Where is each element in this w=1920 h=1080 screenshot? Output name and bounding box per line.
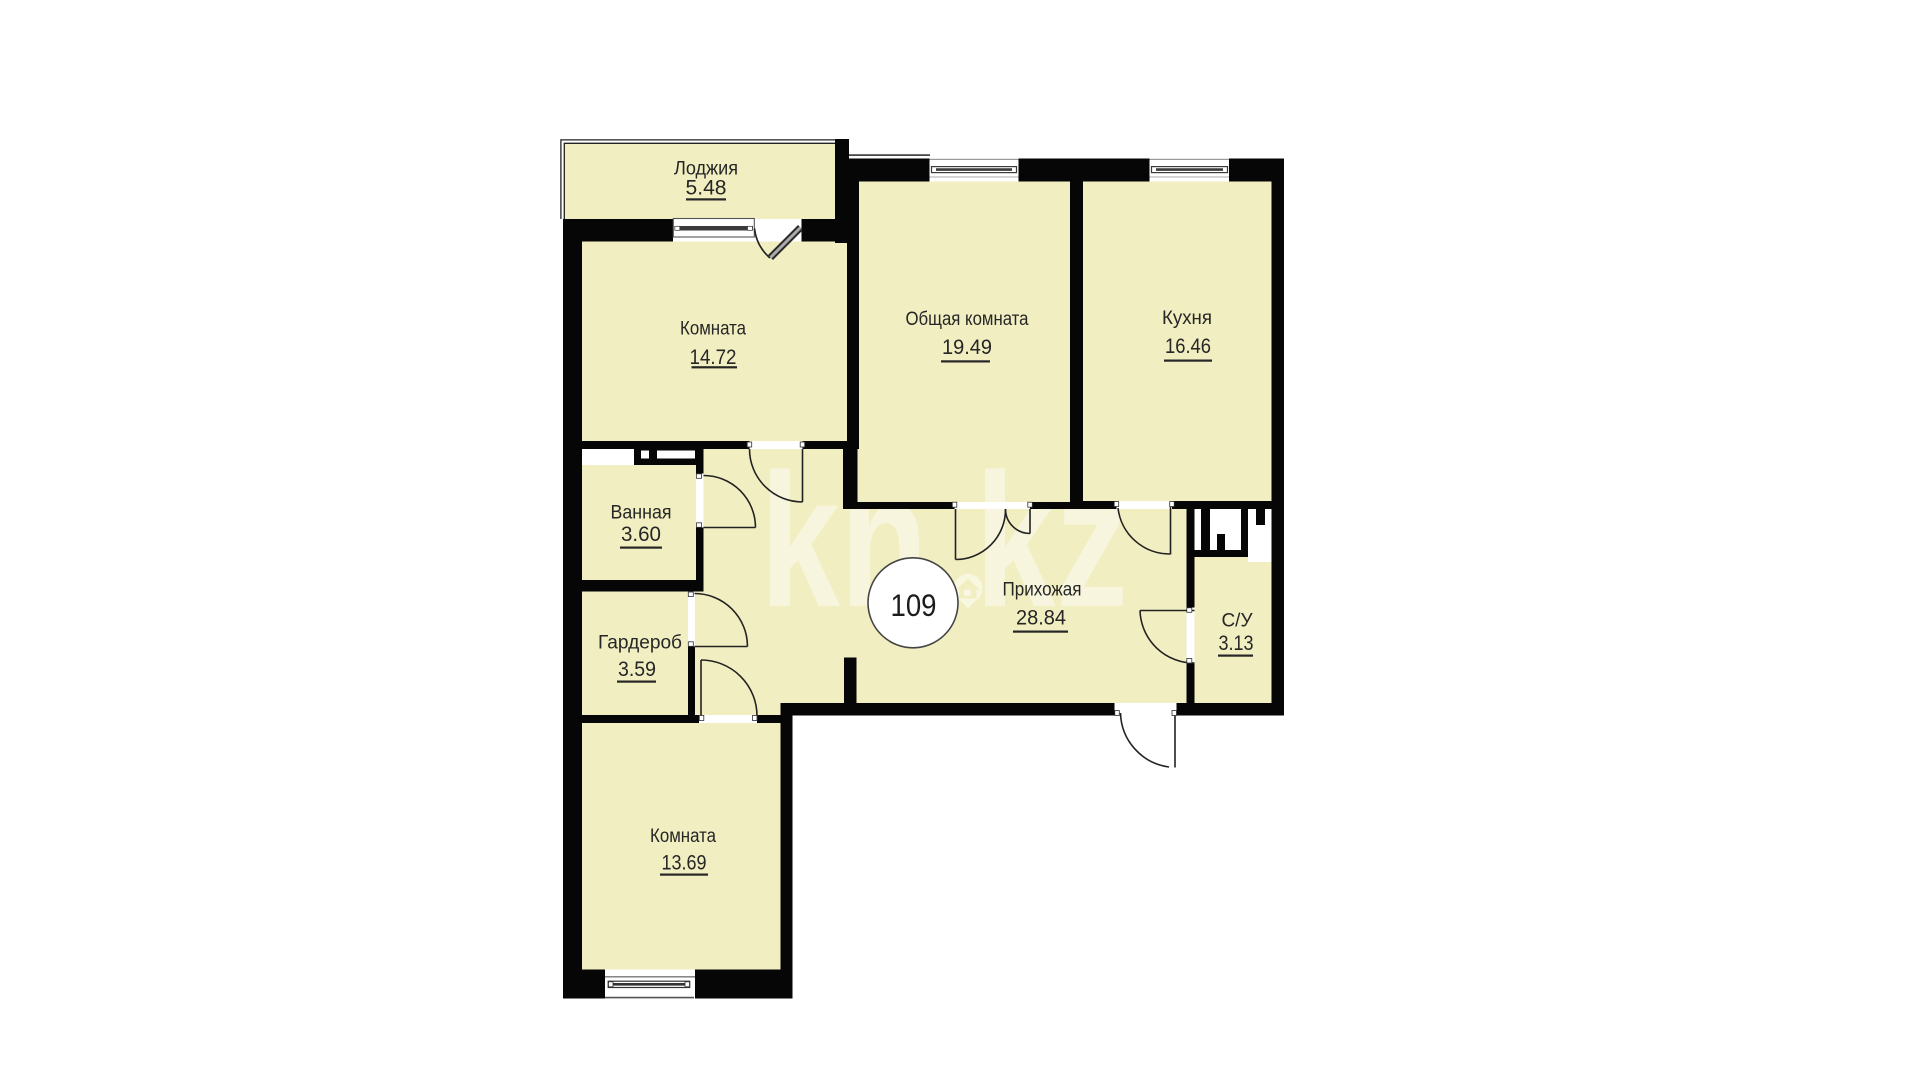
svg-text:С/У: С/У bbox=[1222, 611, 1254, 632]
svg-text:3.59: 3.59 bbox=[618, 657, 656, 681]
svg-text:14.72: 14.72 bbox=[690, 345, 737, 369]
svg-text:Общая комната: Общая комната bbox=[906, 309, 1029, 330]
svg-text:28.84: 28.84 bbox=[1016, 606, 1066, 630]
svg-text:109: 109 bbox=[891, 587, 937, 623]
svg-text:13.69: 13.69 bbox=[662, 851, 707, 875]
svg-text:19.49: 19.49 bbox=[942, 335, 992, 359]
svg-text:Прихожая: Прихожая bbox=[1003, 580, 1082, 601]
svg-text:Комната: Комната bbox=[650, 826, 716, 847]
svg-text:5.48: 5.48 bbox=[686, 176, 727, 200]
svg-text:Кухня: Кухня bbox=[1162, 308, 1212, 329]
svg-text:16.46: 16.46 bbox=[1165, 334, 1211, 358]
svg-text:Гардероб: Гардероб bbox=[598, 633, 682, 654]
svg-text:Комната: Комната bbox=[680, 319, 746, 340]
svg-text:3.60: 3.60 bbox=[621, 522, 661, 546]
svg-text:3.13: 3.13 bbox=[1219, 631, 1254, 655]
svg-text:Ванная: Ванная bbox=[611, 503, 672, 524]
